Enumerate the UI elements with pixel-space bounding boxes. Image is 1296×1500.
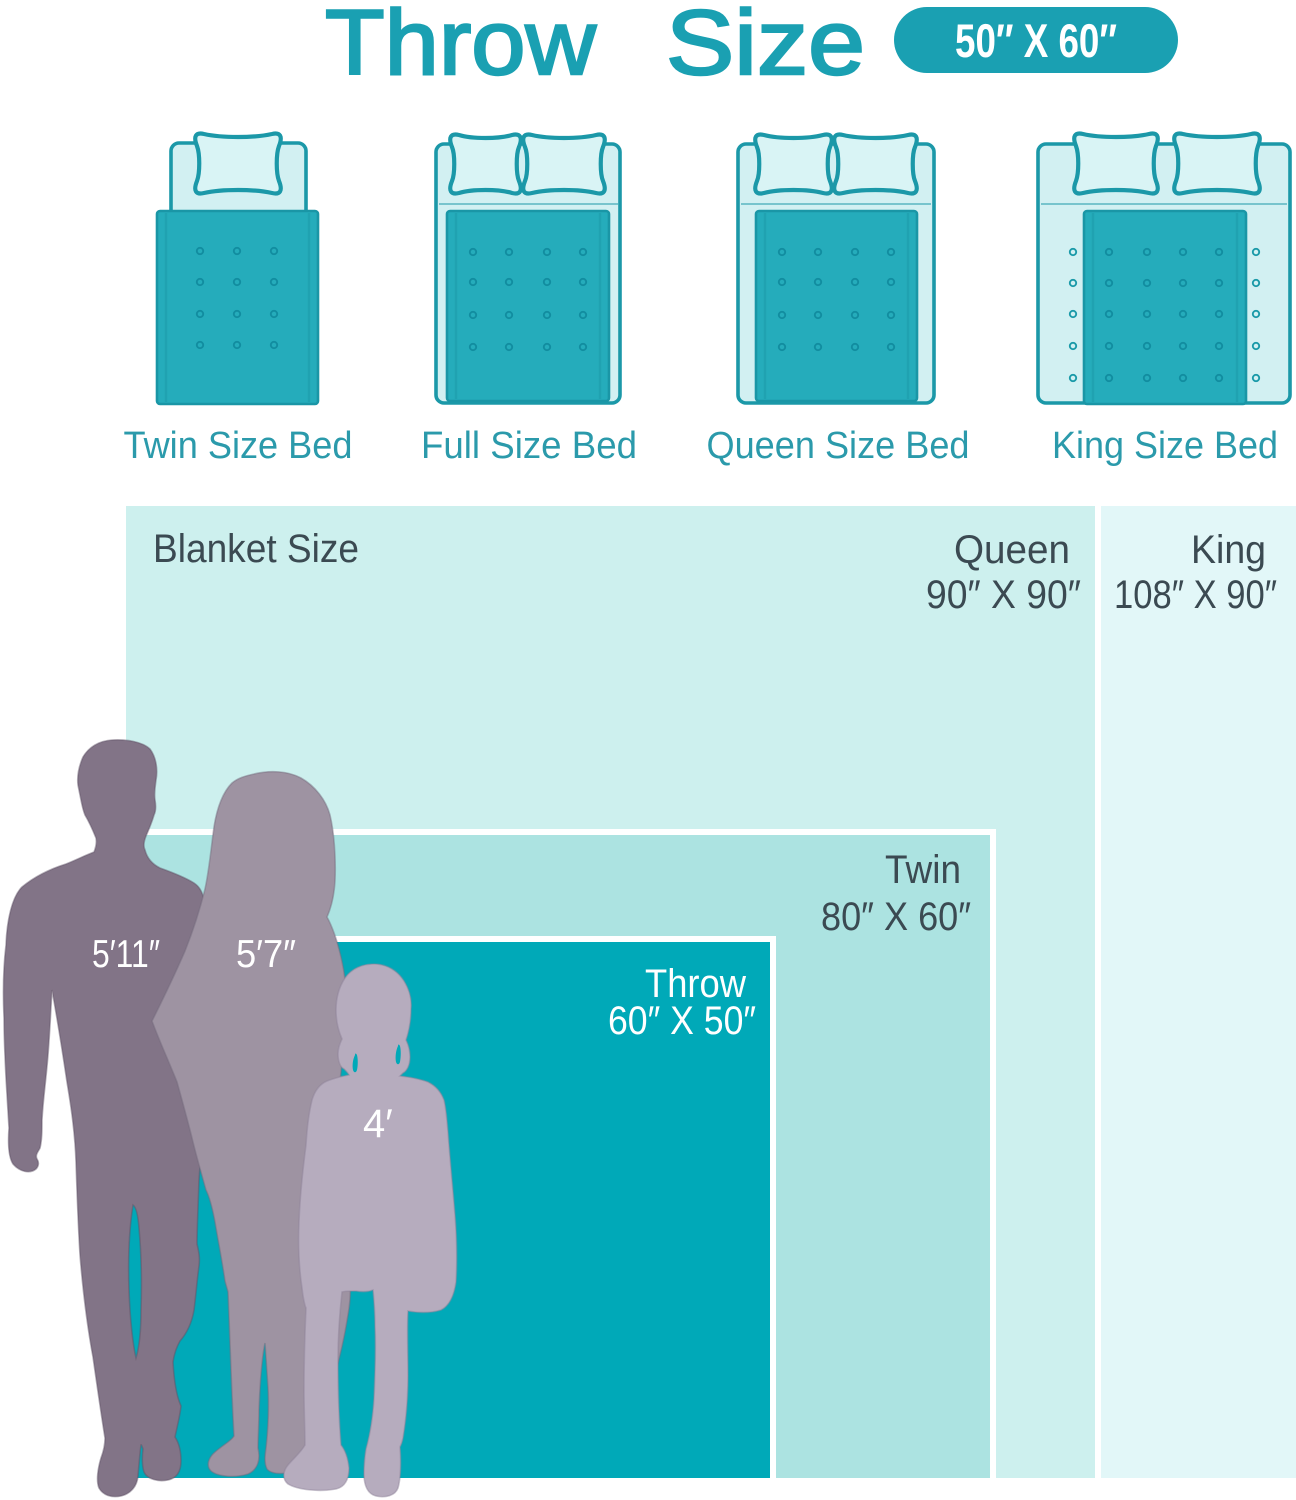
svg-text:Twin Size Bed: Twin Size Bed [124, 425, 353, 467]
svg-text:Twin: Twin [885, 848, 961, 892]
svg-text:5′11″: 5′11″ [92, 933, 160, 976]
svg-text:Queen Size Bed: Queen Size Bed [707, 425, 970, 467]
svg-text:4′: 4′ [363, 1102, 393, 1146]
svg-text:90″ X 90″: 90″ X 90″ [926, 573, 1081, 617]
svg-text:5′7″: 5′7″ [236, 933, 296, 976]
svg-text:King: King [1191, 528, 1266, 572]
svg-text:80″ X 60″: 80″ X 60″ [821, 895, 971, 939]
svg-text:108″ X 90″: 108″ X 90″ [1114, 573, 1277, 617]
svg-text:Blanket Size: Blanket Size [153, 527, 359, 571]
svg-text:50″ X 60″: 50″ X 60″ [955, 14, 1117, 67]
svg-text:Full Size Bed: Full Size Bed [421, 425, 637, 467]
svg-text:60″ X 50″: 60″ X 50″ [608, 999, 756, 1043]
svg-text:Queen: Queen [954, 528, 1070, 572]
svg-text:Throw: Throw [325, 0, 597, 94]
svg-text:Size: Size [666, 0, 865, 94]
svg-text:King Size Bed: King Size Bed [1052, 425, 1278, 467]
